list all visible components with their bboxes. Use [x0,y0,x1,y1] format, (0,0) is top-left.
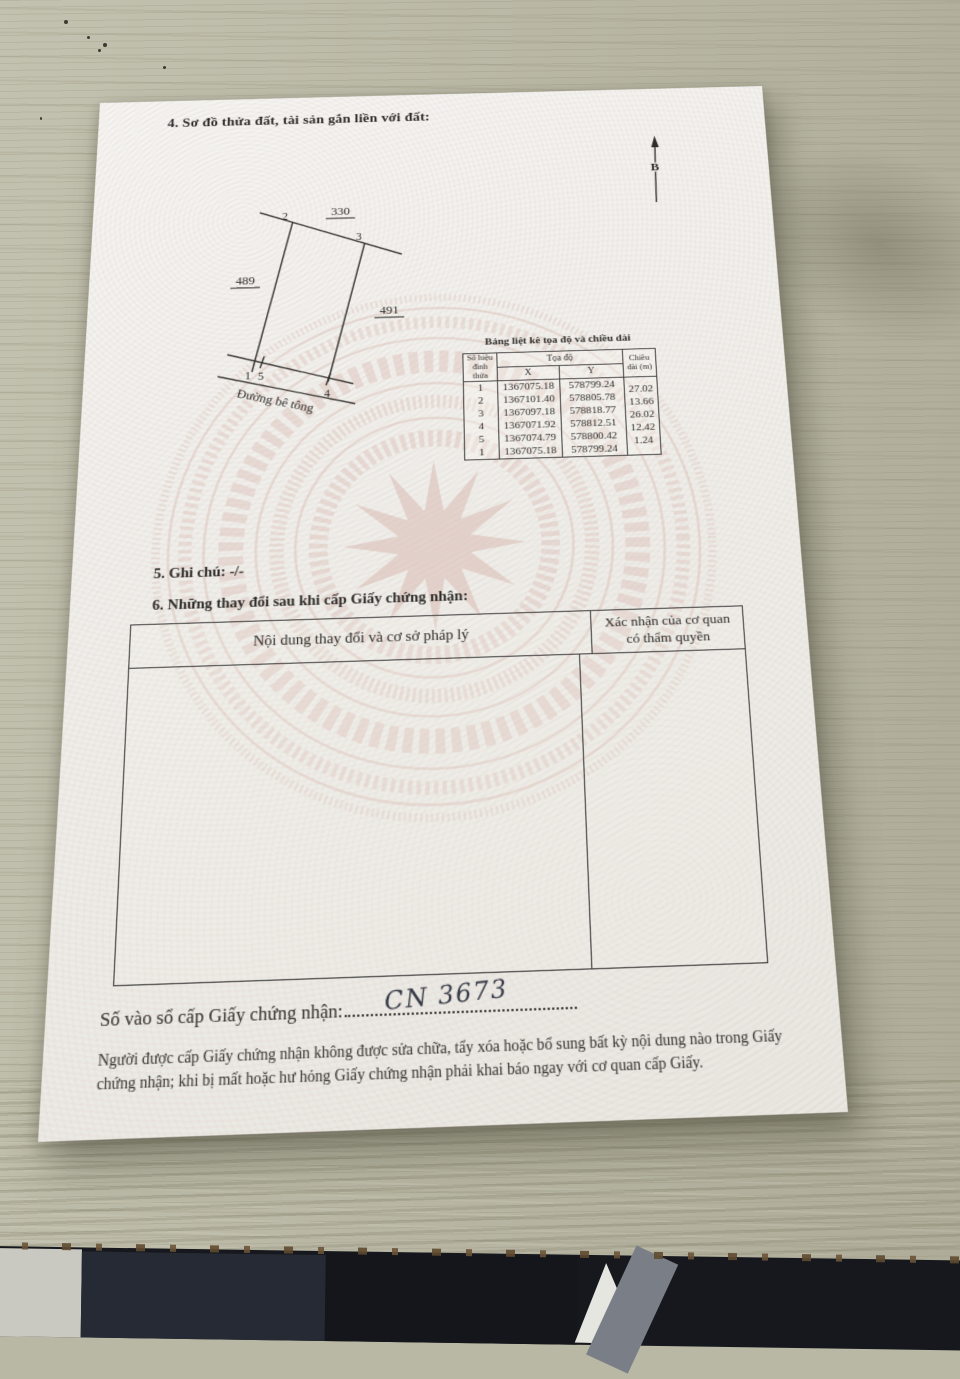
coord-col-length: Chiều dài (m) 27.02 13.66 26.02 12.42 1.… [623,349,661,455]
road-line [217,373,356,408]
coord-cell-v: 3 [464,407,498,421]
coord-length: 1.24 [627,433,660,447]
section5-title: 5. Ghi chú: -/- [153,564,244,583]
vertex-label-4: 4 [324,389,331,401]
coord-table: Số hiệu đỉnh thửa 1 2 3 4 5 1 Tọa độ X 1… [462,348,661,461]
vertex-label-5: 5 [258,372,264,384]
coord-length: 27.02 [624,382,657,396]
coord-length: 13.66 [625,395,658,409]
document-page: 4. Sơ đồ thửa đất, tài sản gắn liền với … [38,86,848,1142]
desk-speck [40,117,42,120]
coord-col-y: Y 578799.24 578805.78 578818.77 578812.5… [559,364,627,457]
changes-body-content-cell [114,654,593,985]
coord-col-coordinates: Tọa độ X 1367075.18 1367101.40 1367097.1… [497,350,628,459]
floor-area [0,1246,960,1351]
plot-bottom-edge-line [226,351,353,387]
floor-light-patch [0,1248,82,1337]
coord-cell-y: 578799.24 [562,442,627,457]
desk-speck [98,49,101,52]
changes-body-confirm-cell [580,649,767,968]
floor-dark-shape [325,1253,578,1345]
vertex4-tick [326,373,330,385]
north-label: B [650,162,659,174]
coord-col-x: X 1367075.18 1367101.40 1367097.18 13670… [498,366,563,459]
vertex-label-1: 1 [245,371,251,383]
road-label: Đường bê tông [235,388,315,415]
coord-cell-v: 5 [465,433,499,447]
plot-right-edge-line [328,243,365,382]
vertex-label-3: 3 [356,232,362,243]
register-number-line: Số vào sổ cấp Giấy chứng nhận: CN 3673 [99,991,577,1032]
coord-cell-x: 1367075.18 [500,444,562,459]
section6-title: 6. Những thay đổi sau khi cấp Giấy chứng… [152,588,468,615]
desk-speck [103,43,107,47]
north-arrow-line [653,142,658,202]
section4-title: 4. Sơ đồ thửa đất, tài sản gắn liền với … [167,111,430,132]
desk-speck [87,36,90,39]
coord-table-caption: Bảng liệt kê tọa độ và chiều dài [460,332,655,348]
vertex5-tick [260,356,264,368]
desk-speck [64,20,68,24]
desk-speck [163,66,166,69]
coord-cell-v: 2 [464,394,498,408]
label491-underline [374,317,404,318]
edge-label-491: 491 [380,304,400,317]
vertex-label-2: 2 [282,212,288,223]
label489-underline [230,287,260,288]
edge-label-489: 489 [236,275,256,287]
certificate-notice: Người được cấp Giấy chứng nhận không đượ… [96,1024,808,1098]
changes-table: Nội dung thay đổi và cơ sở pháp lý Xác n… [113,605,768,986]
register-label: Số vào sổ cấp Giấy chứng nhận: [99,1000,342,1031]
coord-header-length: Chiều dài (m) [623,349,656,378]
edge-label-330: 330 [331,206,350,218]
photo-of-land-certificate: { "section4": { "title": "4. Sơ đồ thửa … [0,0,960,1280]
plot-top-edge-line [259,209,402,258]
coord-cell-v: 4 [465,420,499,434]
coord-header-vertex: Số hiệu đỉnh thửa [463,353,497,382]
coord-length: 12.42 [626,420,659,434]
coord-length: 26.02 [626,408,659,422]
plot-left-edge-line [252,222,293,372]
coord-col-vertex: Số hiệu đỉnh thửa 1 2 3 4 5 1 [463,353,500,459]
changes-table-body [114,649,767,985]
changes-header-confirm: Xác nhận của cơ quan có thẩm quyền [591,606,744,653]
coord-cell-v: 1 [465,446,499,460]
coord-cell-v: 1 [464,381,497,395]
floor-dark-blue-shape [81,1251,326,1341]
label330-underline [326,218,355,219]
north-arrow-head [651,136,659,148]
